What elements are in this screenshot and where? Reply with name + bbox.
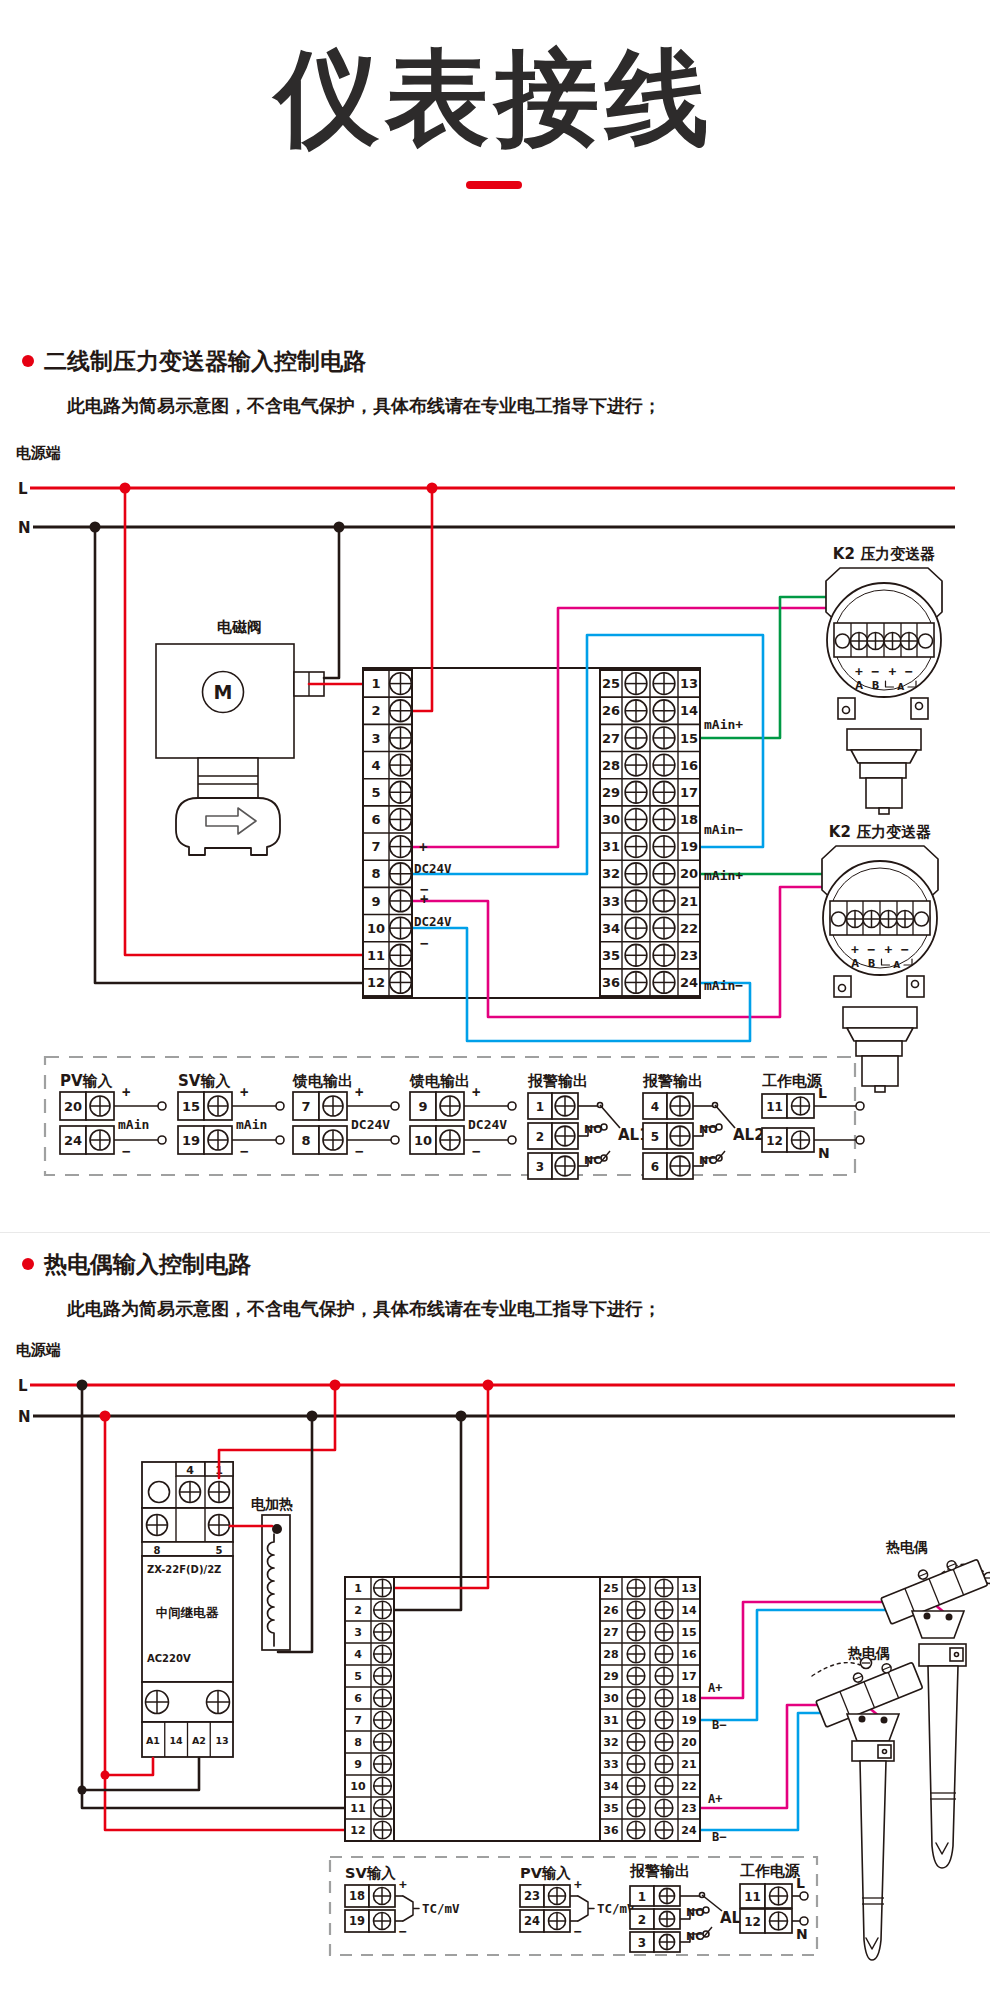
- legend-terminal-number: 5: [651, 1130, 659, 1144]
- legend-nc-label: NC: [584, 1154, 601, 1167]
- legend-alarm-name: AL2: [733, 1126, 765, 1144]
- relay-model: ZX-22F(D)/2Z: [147, 1564, 221, 1575]
- left-terminal-annotation: +: [419, 839, 427, 855]
- screw-terminal: [374, 1579, 392, 1597]
- terminal-number: 33: [602, 894, 620, 909]
- screw-terminal: [792, 1131, 810, 1149]
- terminal-number: 10: [367, 921, 385, 936]
- legend-terminal-number: 4: [651, 1100, 659, 1114]
- section1-bullet: [22, 355, 34, 367]
- terminal-number: 7: [371, 839, 380, 854]
- junction-dot: [881, 1717, 888, 1724]
- screw-terminal: [180, 1482, 201, 1503]
- section-divider: [0, 1232, 990, 1233]
- legend-item-PV输入: PV输入20+24−mAin: [60, 1072, 166, 1159]
- terminal-number: 25: [603, 1582, 618, 1595]
- screw-terminal: [625, 809, 647, 831]
- terminal-number: 27: [603, 1626, 618, 1639]
- intermediate-relay: 4185ZX-22F(D)/2Z中间继电器AC220VA114A213: [142, 1462, 233, 1757]
- terminal-letter: B: [872, 680, 880, 691]
- legend-item-PV输入: PV输入23+24−TC/mV: [520, 1865, 635, 1939]
- thermocouple-1: 热电偶: [877, 1539, 990, 1868]
- screw-terminal: [390, 754, 412, 776]
- screw-terminal: [863, 911, 880, 928]
- legend-terminal-number: 3: [638, 1936, 646, 1950]
- screw-terminal: [555, 1096, 575, 1116]
- legend-nc-label: NC: [699, 1154, 716, 1167]
- terminal-number: 13: [680, 676, 698, 691]
- screw-terminal: [374, 1913, 391, 1930]
- terminal-number: 6: [354, 1692, 362, 1705]
- terminal-strip-left: 123456789101112: [363, 670, 412, 996]
- terminal-number: 22: [680, 921, 698, 936]
- screw-terminal: [670, 1096, 690, 1116]
- legend-item-power: 工作电源11L12N: [762, 1072, 864, 1161]
- screw-terminal: [653, 836, 675, 858]
- terminal-number: 28: [602, 758, 620, 773]
- terminal-number: 13: [681, 1582, 696, 1595]
- legend-terminal-number: 19: [349, 1914, 365, 1928]
- junction-dot: [90, 522, 101, 533]
- screw-terminal: [625, 890, 647, 912]
- terminal-letter: B: [868, 958, 876, 969]
- screw-terminal: [549, 1888, 566, 1905]
- screw-terminal: [655, 1821, 673, 1839]
- legend-terminal-number: 8: [301, 1133, 310, 1148]
- legend-item-馈电输出: 馈电输出7+8−DC24V: [292, 1072, 399, 1159]
- legend-title: 工作电源: [740, 1862, 801, 1880]
- screw-terminal: [390, 863, 412, 885]
- screw-terminal: [374, 1733, 392, 1751]
- terminal-number: 14: [681, 1604, 697, 1617]
- legend-terminal-number: 18: [349, 1889, 365, 1903]
- solenoid-valve: 电磁阀M: [156, 618, 324, 855]
- terminal-number: 36: [603, 1824, 619, 1837]
- terminal-number: 15: [681, 1626, 696, 1639]
- wiring-infographic: LN电磁阀M1234567891011122513261427152816291…: [0, 0, 990, 2012]
- terminal-letter: A: [851, 958, 859, 969]
- screw-terminal: [323, 1130, 343, 1150]
- terminal-number: 21: [680, 894, 698, 909]
- terminal-number: 28: [603, 1648, 618, 1661]
- terminal-sign: +: [851, 942, 859, 957]
- terminal-number: 29: [602, 785, 620, 800]
- legend-item-alarm: 报警输出123NONCAL1: [527, 1072, 650, 1179]
- terminal-sign: +: [885, 942, 893, 957]
- legend-polarity: −: [399, 1924, 407, 1939]
- screw-terminal: [847, 911, 864, 928]
- terminal-number: 32: [603, 1736, 618, 1749]
- legend-row-1: PV输入20+24−mAinSV输入15+19−mAin馈电输出7+8−DC24…: [45, 1057, 864, 1179]
- l-label: L: [18, 1377, 28, 1395]
- screw-terminal: [374, 1645, 392, 1663]
- right-terminal-annotation: mAin−: [704, 978, 743, 993]
- terminal-number: 20: [681, 1736, 697, 1749]
- terminal-number: 23: [680, 948, 698, 963]
- legend-no-label: NO: [584, 1123, 603, 1136]
- screw-terminal: [374, 1601, 392, 1619]
- terminal-strip-left: 123456789101112: [345, 1577, 394, 1841]
- screw-terminal: [851, 633, 868, 650]
- legend-terminal-number: 6: [651, 1160, 659, 1174]
- screw-terminal: [770, 1887, 788, 1905]
- section2-power-terminal-label: 电源端: [16, 1341, 61, 1360]
- screw-terminal: [653, 917, 675, 939]
- legend-terminal-number: 7: [301, 1099, 310, 1114]
- screw-terminal: [390, 727, 412, 749]
- legend-title: 报警输出: [629, 1862, 690, 1880]
- terminal-number: 6: [371, 812, 380, 827]
- screw-terminal: [625, 673, 647, 695]
- terminal-number: 35: [603, 1802, 618, 1815]
- screw-terminal: [653, 972, 675, 994]
- right-terminal-annotation: mAin−: [704, 822, 743, 837]
- legend-title: 报警输出: [527, 1072, 588, 1090]
- junction-dot: [427, 483, 438, 494]
- screw-terminal: [655, 1645, 673, 1663]
- terminal-strip-right: 2513261427152816291730183119322033213422…: [600, 1577, 700, 1841]
- left-terminal-annotation: DC24V: [414, 914, 452, 929]
- screw-terminal: [625, 700, 647, 722]
- terminal-sign: −: [872, 664, 880, 679]
- terminal-number: 3: [371, 731, 380, 746]
- heater-label: 电加热: [251, 1496, 293, 1512]
- legend-item-alarm: 报警输出123NONCAL1: [629, 1862, 752, 1952]
- left-terminal-annotation: −: [420, 935, 428, 951]
- legend-no-label: NO: [686, 1906, 705, 1919]
- screw-terminal: [90, 1096, 110, 1116]
- legend-ln-label: N: [818, 1145, 830, 1161]
- screw-terminal: [655, 1579, 673, 1597]
- terminal-number: 33: [603, 1758, 618, 1771]
- junction-dot: [859, 1716, 866, 1723]
- relay-terminal-number: 4: [186, 1464, 194, 1477]
- junction-dot: [78, 1786, 87, 1795]
- right-terminal-annotation: B−: [712, 1718, 726, 1732]
- terminal-number: 17: [681, 1670, 696, 1683]
- legend-mid-label: mAin: [118, 1117, 149, 1132]
- terminal-number: 12: [350, 1824, 365, 1837]
- terminal-number: 34: [602, 921, 620, 936]
- terminal-number: 15: [680, 731, 698, 746]
- screw-terminal: [627, 1777, 645, 1795]
- n-label: N: [18, 1408, 31, 1426]
- legend-terminal-number: 24: [524, 1914, 540, 1928]
- section1-heading: 二线制压力变送器输入控制电路: [44, 346, 366, 377]
- legend-title: 报警输出: [642, 1072, 703, 1090]
- terminal-number: 34: [603, 1780, 619, 1793]
- terminal-number: 30: [602, 812, 620, 827]
- legend-title: SV输入: [345, 1865, 396, 1881]
- screw-terminal: [323, 1096, 343, 1116]
- terminal-number: 26: [602, 703, 620, 718]
- legend-terminal-number: 11: [766, 1100, 783, 1114]
- terminal-number: 8: [371, 866, 380, 881]
- screw-terminal: [549, 1913, 566, 1930]
- terminal-sign: +: [855, 664, 863, 679]
- legend-title: PV输入: [520, 1865, 571, 1881]
- wire-n-to-2: [391, 1416, 461, 1610]
- screw-terminal: [555, 1126, 575, 1146]
- terminal-number: 17: [680, 785, 698, 800]
- screw-terminal: [440, 1130, 460, 1150]
- screw-terminal: [374, 1711, 392, 1729]
- screw-terminal: [147, 1515, 168, 1536]
- screw-terminal: [625, 836, 647, 858]
- legend-polarity: −: [122, 1143, 130, 1159]
- legend-terminal-number: 9: [418, 1099, 427, 1114]
- section1-note: 此电路为简易示意图，不含电气保护，具体布线请在专业电工指导下进行；: [67, 394, 661, 418]
- screw-terminal: [146, 1691, 169, 1714]
- legend-terminal-number: 19: [182, 1133, 200, 1148]
- electric-heater: 电加热: [251, 1496, 293, 1650]
- screw-terminal: [627, 1623, 645, 1641]
- screw-terminal: [659, 1888, 674, 1903]
- screw-terminal: [627, 1667, 645, 1685]
- section1-power-terminal-label: 电源端: [16, 444, 61, 463]
- screw-terminal: [670, 1156, 690, 1176]
- screw-terminal: [374, 1821, 392, 1839]
- junction-dot: [272, 1524, 282, 1534]
- terminal-number: 30: [603, 1692, 619, 1705]
- terminal-number: 4: [371, 758, 380, 773]
- terminal-number: 19: [680, 839, 698, 854]
- legend-terminal-number: 15: [182, 1099, 200, 1114]
- screw-terminal: [390, 917, 412, 939]
- wire-l-to-relay-contact: [219, 1385, 335, 1478]
- pressure-transmitter-1: K2 压力变送器+−+−ABA: [826, 545, 942, 814]
- legend-mid-label: mAin: [236, 1117, 267, 1132]
- legend-item-power: 工作电源11L12N: [740, 1862, 808, 1942]
- relay-bottom-label: 13: [215, 1735, 228, 1746]
- screw-terminal: [655, 1623, 673, 1641]
- legend-polarity: −: [574, 1924, 582, 1939]
- relay-bottom-label: 14: [169, 1735, 183, 1746]
- left-terminal-annotation: DC24V: [414, 861, 452, 876]
- relay-terminal-number: 5: [216, 1545, 223, 1556]
- screw-terminal: [655, 1689, 673, 1707]
- legend-polarity: +: [399, 1877, 407, 1892]
- terminal-number: 16: [681, 1648, 697, 1661]
- legend-terminal-number: 1: [638, 1890, 646, 1904]
- screw-terminal: [625, 863, 647, 885]
- relay-bottom-label: A1: [146, 1735, 160, 1746]
- terminal-strip-right: 2513261427152816291730183119322033213422…: [600, 670, 700, 996]
- screw-terminal: [659, 1934, 674, 1949]
- terminal-sign: −: [868, 942, 876, 957]
- terminal-number: 2: [371, 703, 380, 718]
- legend-polarity: +: [240, 1084, 248, 1100]
- right-terminal-annotation: mAin+: [704, 717, 743, 732]
- screw-terminal: [627, 1733, 645, 1751]
- screw-terminal: [625, 781, 647, 803]
- legend-terminal-number: 10: [414, 1133, 432, 1148]
- screw-terminal: [390, 972, 412, 994]
- terminal-number: 35: [602, 948, 620, 963]
- terminal-sign: +: [889, 664, 897, 679]
- terminal-number: 5: [371, 785, 380, 800]
- terminal-number: 36: [602, 975, 620, 990]
- screw-terminal: [627, 1755, 645, 1773]
- relay-name: 中间继电器: [156, 1605, 219, 1620]
- terminal-number: 7: [354, 1714, 362, 1727]
- legend-row-2: SV输入18+19−TC/mVPV输入23+24−TC/mV报警输出123NON…: [330, 1857, 817, 1955]
- screw-terminal: [901, 633, 918, 650]
- terminal-number: 10: [350, 1780, 366, 1793]
- legend-terminal-number: 2: [638, 1913, 646, 1927]
- section2-bullet: [22, 1258, 34, 1270]
- terminal-number: 24: [681, 1824, 697, 1837]
- screw-terminal: [374, 1667, 392, 1685]
- screw-terminal: [374, 1689, 392, 1707]
- terminal-sign: −: [901, 942, 909, 957]
- junction-dot: [456, 1411, 467, 1422]
- screw-terminal: [207, 1691, 230, 1714]
- terminal-number: 26: [603, 1604, 619, 1617]
- legend-title: 馈电输出: [409, 1072, 470, 1090]
- terminal-sign: −: [905, 664, 913, 679]
- section1-diagram: LN电磁阀M1234567891011122513261427152816291…: [18, 480, 955, 1179]
- junction-dot: [946, 1614, 953, 1621]
- screw-terminal: [653, 754, 675, 776]
- section2-diagram: LN4185ZX-22F(D)/2Z中间继电器AC220VA114A213电加热…: [18, 1377, 990, 1960]
- legend-nc-label: NC: [686, 1930, 703, 1943]
- transmitter-label: K2 压力变送器: [829, 823, 931, 841]
- screw-terminal: [390, 836, 412, 858]
- legend-item-馈电输出: 馈电输出9+10−DC24V: [409, 1072, 516, 1159]
- thermocouple-2: 热电偶: [812, 1645, 923, 1960]
- terminal-number: 5: [354, 1670, 362, 1683]
- screw-terminal: [625, 727, 647, 749]
- screw-terminal: [625, 944, 647, 966]
- screw-terminal: [208, 1130, 228, 1150]
- screw-terminal: [655, 1711, 673, 1729]
- screw-terminal: [655, 1733, 673, 1751]
- legend-title: 馈电输出: [292, 1072, 353, 1090]
- section2-note: 此电路为简易示意图，不含电气保护，具体布线请在专业电工指导下进行；: [67, 1297, 661, 1321]
- screw-terminal: [627, 1645, 645, 1663]
- screw-terminal: [653, 673, 675, 695]
- legend-item-alarm: 报警输出456NONCAL2: [642, 1072, 765, 1179]
- screw-terminal: [655, 1777, 673, 1795]
- screw-terminal: [209, 1515, 230, 1536]
- screw-terminal: [625, 972, 647, 994]
- terminal-number: 23: [681, 1802, 696, 1815]
- legend-item-SV输入: SV输入18+19−TC/mV: [345, 1865, 460, 1939]
- legend-title: 工作电源: [762, 1072, 823, 1090]
- screw-terminal: [880, 911, 897, 928]
- junction-dot: [307, 1411, 318, 1422]
- relay-voltage: AC220V: [147, 1653, 191, 1664]
- legend-mid-label: DC24V: [351, 1117, 390, 1132]
- transmitter-label: K2 压力变送器: [833, 545, 935, 563]
- screw-terminal: [90, 1130, 110, 1150]
- n-label: N: [18, 519, 31, 537]
- adjust-letter: A: [897, 682, 904, 692]
- screw-terminal: [625, 754, 647, 776]
- screw-terminal: [653, 700, 675, 722]
- screw-terminal: [884, 633, 901, 650]
- legend-polarity: −: [472, 1143, 480, 1159]
- junction-dot: [924, 1613, 931, 1620]
- screw-terminal: [208, 1096, 228, 1116]
- terminal-number: 32: [602, 866, 620, 881]
- left-terminal-annotation: +: [420, 891, 428, 907]
- right-terminal-annotation: A+: [708, 1792, 722, 1806]
- wire-24-to-tc2: [673, 1713, 860, 1830]
- legend-mid-label: TC/mV: [422, 1901, 460, 1916]
- right-terminal-annotation: mAin+: [704, 868, 743, 883]
- terminal-number: 11: [367, 948, 385, 963]
- l-label: L: [18, 480, 28, 498]
- motor-letter: M: [214, 681, 233, 703]
- right-terminal-annotation: A+: [708, 1681, 722, 1695]
- terminal-number: 4: [354, 1648, 362, 1661]
- legend-polarity: −: [240, 1143, 248, 1159]
- screw-terminal: [627, 1821, 645, 1839]
- legend-terminal-number: 1: [536, 1100, 544, 1114]
- terminal-number: 18: [680, 812, 698, 827]
- screw-terminal: [627, 1689, 645, 1707]
- junction-dot: [330, 1380, 341, 1391]
- junction-dot: [120, 483, 131, 494]
- screw-terminal: [655, 1799, 673, 1817]
- junction-dot: [101, 1771, 110, 1780]
- junction-dot: [77, 1380, 88, 1391]
- terminal-number: 21: [681, 1758, 696, 1771]
- screw-terminal: [390, 781, 412, 803]
- pressure-transmitter-2: K2 压力变送器+−+−ABA: [822, 823, 938, 1092]
- legend-title: SV输入: [178, 1072, 231, 1090]
- right-terminal-annotation: B−: [712, 1830, 726, 1844]
- terminal-number: 14: [680, 703, 698, 718]
- terminal-number: 31: [603, 1714, 618, 1727]
- screw-terminal: [627, 1601, 645, 1619]
- terminal-number: 25: [602, 676, 620, 691]
- screw-terminal: [867, 633, 884, 650]
- screw-terminal: [555, 1156, 575, 1176]
- terminal-number: 2: [354, 1604, 362, 1617]
- legend-ln-label: N: [796, 1926, 808, 1942]
- screw-terminal: [897, 911, 914, 928]
- wire-coil-a1: [105, 1758, 153, 1775]
- screw-terminal: [627, 1579, 645, 1597]
- screw-terminal: [655, 1601, 673, 1619]
- legend-terminal-number: 2: [536, 1130, 544, 1144]
- cap-screw: [861, 1658, 872, 1669]
- section2-heading: 热电偶输入控制电路: [44, 1249, 251, 1280]
- legend-terminal-number: 20: [64, 1099, 82, 1114]
- screw-terminal: [390, 673, 412, 695]
- terminal-number: 29: [603, 1670, 618, 1683]
- legend-no-label: NO: [699, 1123, 718, 1136]
- legend-terminal-number: 24: [64, 1133, 82, 1148]
- terminal-number: 19: [681, 1714, 696, 1727]
- screw-terminal: [655, 1667, 673, 1685]
- screw-terminal: [374, 1755, 392, 1773]
- screw-terminal: [653, 890, 675, 912]
- legend-terminal-number: 23: [524, 1889, 540, 1903]
- screw-terminal: [653, 944, 675, 966]
- legend-terminal-number: 11: [744, 1890, 761, 1904]
- screw-terminal: [653, 863, 675, 885]
- screw-terminal: [670, 1126, 690, 1146]
- legend-mid-label: DC24V: [468, 1117, 507, 1132]
- terminal-number: 1: [354, 1582, 362, 1595]
- legend-ln-label: L: [818, 1085, 827, 1101]
- legend-polarity: +: [122, 1084, 130, 1100]
- screw-terminal: [390, 890, 412, 912]
